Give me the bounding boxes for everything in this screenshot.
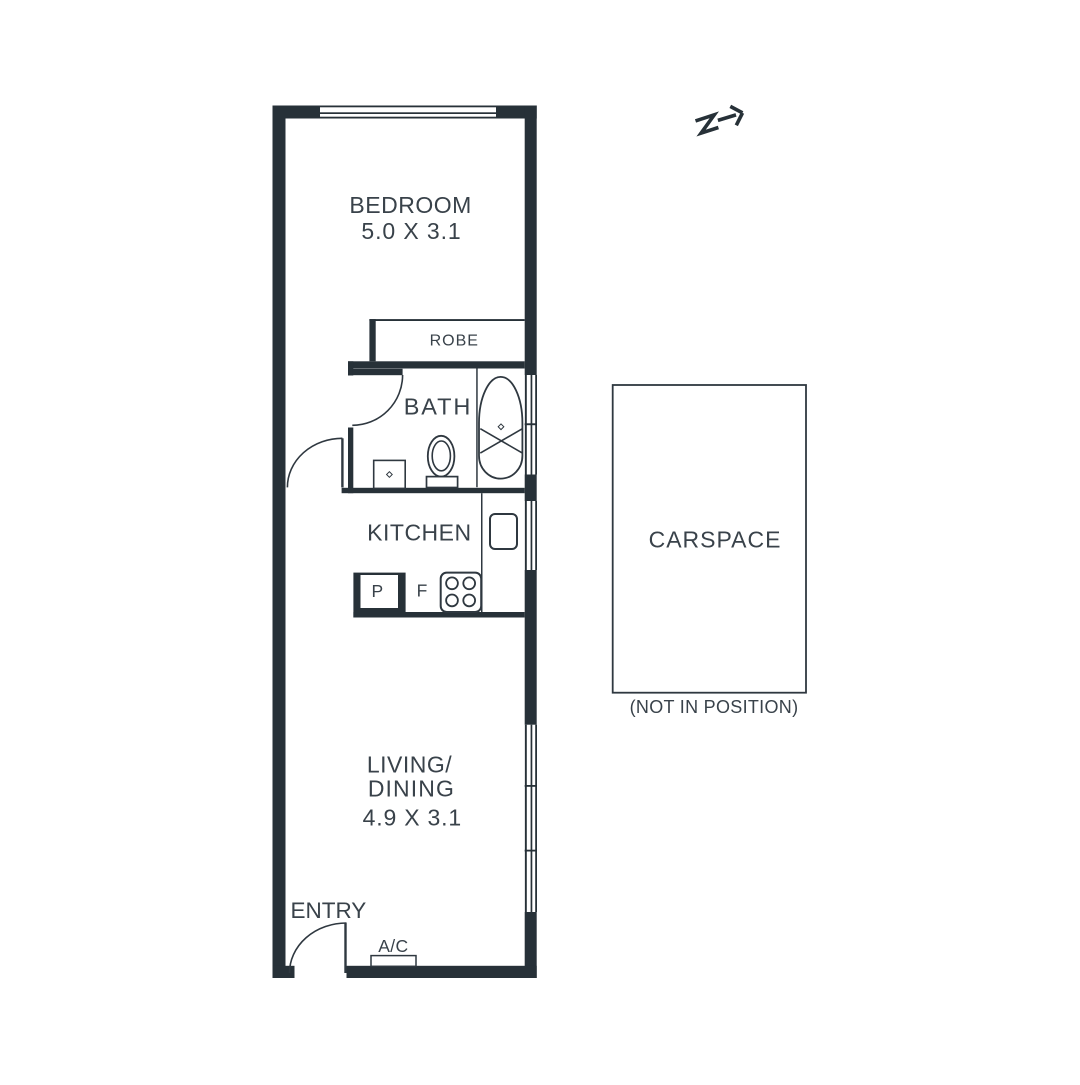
svg-text:A/C: A/C <box>378 936 408 956</box>
svg-text:5.0 X 3.1: 5.0 X 3.1 <box>361 218 461 244</box>
svg-text:CARSPACE: CARSPACE <box>649 527 782 553</box>
svg-text:P: P <box>371 581 383 601</box>
svg-text:ROBE: ROBE <box>430 333 479 350</box>
svg-text:F: F <box>417 581 428 601</box>
svg-text:BEDROOM: BEDROOM <box>349 192 471 218</box>
svg-text:BATH: BATH <box>404 394 473 420</box>
svg-text:LIVING/: LIVING/ <box>367 752 452 778</box>
svg-text:4.9 X 3.1: 4.9 X 3.1 <box>363 805 462 831</box>
svg-text:DINING: DINING <box>368 775 455 801</box>
svg-text:(NOT IN POSITION): (NOT IN POSITION) <box>630 697 799 717</box>
svg-text:KITCHEN: KITCHEN <box>367 520 471 546</box>
svg-text:ENTRY: ENTRY <box>290 898 366 923</box>
